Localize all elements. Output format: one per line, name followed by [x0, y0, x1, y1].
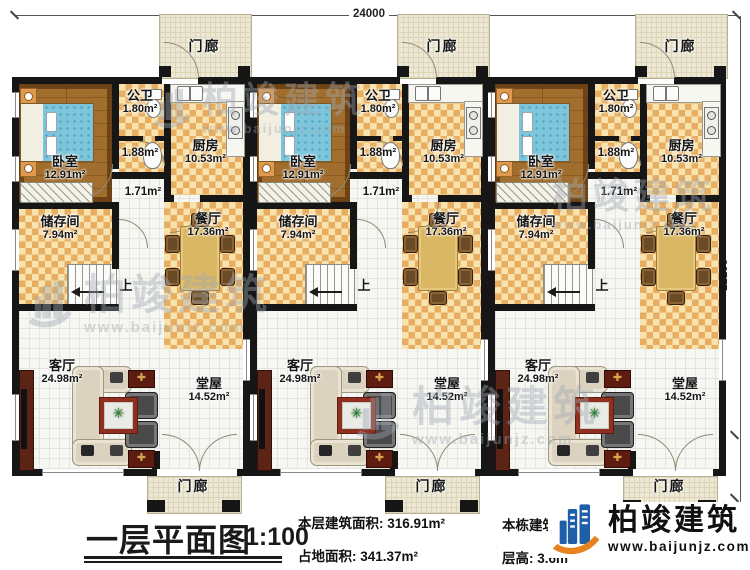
room-name: 堂屋 — [646, 376, 724, 391]
pillow — [46, 136, 57, 156]
room-name: 客厅 — [260, 358, 340, 373]
wall — [475, 469, 488, 476]
room-area: 12.91m² — [26, 169, 104, 182]
pillow — [46, 112, 57, 132]
corridor-a-label: 1.88m² — [591, 147, 641, 161]
living-label: 客厅 24.98m² — [22, 358, 102, 386]
porch-pillar — [714, 66, 726, 77]
porch-pillar — [385, 500, 403, 512]
kitchen-label: 厨房 10.53m² — [406, 138, 481, 166]
watermark-url: www.baijunjz.com — [84, 319, 272, 336]
room-area: 10.53m² — [406, 153, 481, 166]
room-name: 储存间 — [20, 214, 100, 229]
room-area: 24.98m² — [260, 373, 340, 386]
room-name: 客厅 — [22, 358, 102, 373]
room-name: 卧室 — [264, 154, 342, 169]
company-logo-icon — [548, 502, 604, 558]
staircase — [305, 264, 355, 307]
porch-top-label: 门廊 — [159, 38, 250, 55]
dining-chair — [696, 268, 711, 286]
room-name: 卧室 — [26, 154, 104, 169]
watermark-logo-icon — [150, 87, 194, 131]
corridor-b-label: 1.71m² — [355, 186, 407, 200]
wall — [350, 209, 357, 269]
wardrobe — [258, 182, 331, 203]
porch-bottom-label: 门廊 — [385, 478, 478, 495]
stairs-up-label: 上 — [592, 278, 612, 293]
porch-bottom-label: 门廊 — [147, 478, 240, 495]
plant-icon: ✳ — [100, 405, 137, 422]
room-name: 公卫 — [591, 88, 641, 103]
dining-chair — [458, 268, 473, 286]
room-area: 24.98m² — [22, 373, 102, 386]
room-name: 卧室 — [502, 154, 580, 169]
watermark-url: www.baijunjz.com — [552, 217, 716, 232]
storage-window — [488, 229, 495, 271]
wall — [200, 195, 250, 202]
bedroom-window — [12, 156, 19, 182]
wall — [438, 195, 488, 202]
wall — [360, 469, 395, 476]
hall-label: 堂屋 14.52m² — [170, 376, 248, 404]
stove — [704, 107, 719, 139]
wardrobe — [20, 182, 93, 203]
storage-label: 储存间 7.94m² — [20, 214, 100, 242]
side-table: ✚ — [128, 370, 155, 388]
wall — [237, 469, 250, 476]
bathroom-label: 公卫 1.80m² — [591, 88, 641, 116]
watermark-logo-icon — [24, 279, 76, 331]
floor-plan-page: 24000 12100 1000, 1200 — [0, 0, 750, 570]
stat-floor-area: 本层建筑面积: 316.91m² — [298, 512, 445, 532]
watermark-text: 柏竣建筑 www.baijunjz.com — [84, 274, 272, 336]
storage-window — [250, 229, 257, 271]
side-table: ✚ — [604, 450, 631, 468]
room-area: 17.36m² — [172, 226, 244, 239]
sofa-bottom — [72, 439, 132, 466]
room-name: 餐厅 — [172, 211, 244, 226]
porch-pillar — [222, 500, 240, 512]
living-side-window — [12, 394, 19, 441]
living-side-window — [250, 394, 257, 441]
room-area: 7.94m² — [258, 229, 338, 242]
bedroom-window — [12, 92, 19, 118]
side-table: ✚ — [128, 450, 155, 468]
dim-tick — [730, 430, 739, 439]
stairs-up-label: 上 — [354, 278, 374, 293]
wall — [488, 77, 638, 84]
room-area: 10.53m² — [644, 153, 719, 166]
hall-window — [481, 339, 488, 381]
bedroom-window — [488, 156, 495, 182]
watermark-brand: 柏竣建筑 — [552, 178, 716, 214]
watermark-brand: 柏竣建筑 — [412, 386, 600, 428]
dining-chair — [403, 268, 418, 286]
watermark: 柏竣建筑 www.baijunjz.com — [24, 274, 272, 336]
porch-pillar — [460, 500, 478, 512]
watermark: 柏竣建筑 www.baijunjz.com — [352, 386, 600, 448]
side-table: ✚ — [604, 370, 631, 388]
hall-window — [719, 339, 726, 381]
bedroom-label: 卧室 12.91m² — [264, 154, 342, 182]
room-name: 厨房 — [644, 138, 719, 153]
wall — [112, 172, 170, 179]
room-area: 17.36m² — [410, 226, 482, 239]
watermark: 柏竣建筑 www.baijunjz.com — [150, 82, 366, 136]
room-area: 10.53m² — [168, 153, 243, 166]
wall — [350, 172, 408, 179]
hall-window — [243, 339, 250, 381]
watermark-logo-icon — [352, 391, 404, 443]
side-table: ✚ — [366, 450, 393, 468]
stat-value: 341.37m² — [360, 549, 418, 564]
dining-label: 餐厅 17.36m² — [172, 211, 244, 239]
stairs-up-arrow — [549, 291, 580, 293]
porch-top-label: 门廊 — [397, 38, 488, 55]
right-dimension-line — [740, 16, 741, 508]
living-room-window — [280, 469, 362, 476]
wall — [112, 209, 119, 269]
wall — [488, 304, 595, 311]
wall — [122, 469, 157, 476]
bedroom-window — [488, 92, 495, 118]
pillow — [522, 112, 533, 132]
living-room-window — [42, 469, 124, 476]
watermark-brand: 柏竣建筑 — [202, 82, 366, 118]
room-area: 14.52m² — [646, 391, 724, 404]
stat-land-area: 占地面积: 341.37m² — [298, 545, 445, 565]
room-area: 7.94m² — [20, 229, 100, 242]
kitchen-sink — [415, 86, 441, 101]
company-name: 柏竣建筑 — [608, 506, 750, 536]
watermark-text: 柏竣建筑 www.baijunjz.com — [412, 386, 600, 448]
stat-label: 占地面积: — [298, 549, 357, 564]
room-name: 储存间 — [258, 214, 338, 229]
storage-label: 储存间 7.94m² — [258, 214, 338, 242]
kitchen-label: 厨房 10.53m² — [168, 138, 243, 166]
room-area: 14.52m² — [170, 391, 248, 404]
dining-label: 餐厅 17.36m² — [410, 211, 482, 239]
porch-pillar — [476, 66, 488, 77]
bedroom-window — [250, 156, 257, 182]
title-underline — [84, 556, 282, 559]
porch-bottom-label: 门廊 — [623, 478, 716, 495]
room-name: 堂屋 — [170, 376, 248, 391]
stat-label: 层高: — [502, 551, 534, 566]
pillow — [522, 136, 533, 156]
company-logo: 柏竣建筑 www.baijunjz.com — [548, 502, 750, 558]
corridor-a-label: 1.88m² — [353, 147, 403, 161]
rug-coffee-table: ✳ — [99, 397, 138, 434]
dining-chair — [667, 291, 685, 305]
stove — [466, 107, 481, 139]
corridor-a-label: 1.88m² — [115, 147, 165, 161]
dining-chair — [641, 268, 656, 286]
wall — [393, 136, 402, 141]
company-logo-text: 柏竣建筑 www.baijunjz.com — [608, 506, 750, 554]
bed-sheet — [497, 104, 520, 161]
wall — [12, 77, 162, 84]
porch-pillar — [147, 500, 165, 512]
room-name: 厨房 — [168, 138, 243, 153]
living-label: 客厅 24.98m² — [260, 358, 340, 386]
watermark-brand: 柏竣建筑 — [84, 274, 272, 316]
watermark: 柏竣建筑 www.baijunjz.com — [552, 178, 716, 232]
storage-window — [12, 229, 19, 271]
watermark-text: 柏竣建筑 www.baijunjz.com — [202, 82, 366, 136]
bed-sheet — [21, 104, 44, 161]
watermark-url: www.baijunjz.com — [202, 121, 366, 136]
wall — [631, 136, 640, 141]
stats-column-1: 本层建筑面积: 316.91m² 占地面积: 341.37m² — [298, 512, 445, 570]
room-name: 餐厅 — [410, 211, 482, 226]
room-area: 12.91m² — [264, 169, 342, 182]
wall — [713, 469, 726, 476]
wall — [598, 469, 633, 476]
dining-chair — [429, 291, 447, 305]
kitchen-sink — [653, 86, 679, 101]
living-room-window — [518, 469, 600, 476]
stat-value: 316.91m² — [387, 516, 445, 531]
tv — [21, 389, 27, 449]
plan-title: 一层平面图 — [86, 515, 251, 561]
room-area: 1.80m² — [591, 103, 641, 116]
wall — [12, 202, 119, 209]
watermark-url: www.baijunjz.com — [412, 431, 600, 448]
wall — [155, 136, 164, 141]
bedroom-label: 卧室 12.91m² — [26, 154, 104, 182]
stat-label: 本层建筑面积: — [298, 516, 384, 531]
hall-label: 堂屋 14.52m² — [646, 376, 724, 404]
title-underline — [84, 561, 282, 563]
corridor-b-label: 1.71m² — [117, 186, 169, 200]
room-name: 客厅 — [498, 358, 578, 373]
kitchen-label: 厨房 10.53m² — [644, 138, 719, 166]
company-url: www.baijunjz.com — [608, 539, 750, 554]
watermark-text: 柏竣建筑 www.baijunjz.com — [552, 178, 716, 232]
tv — [259, 389, 265, 449]
wall — [250, 202, 357, 209]
porch-top-label: 门廊 — [635, 38, 726, 55]
staircase — [543, 264, 593, 307]
porch-pillar — [238, 66, 250, 77]
room-name: 厨房 — [406, 138, 481, 153]
stairs-up-arrow — [311, 291, 342, 293]
pillow — [284, 136, 295, 156]
